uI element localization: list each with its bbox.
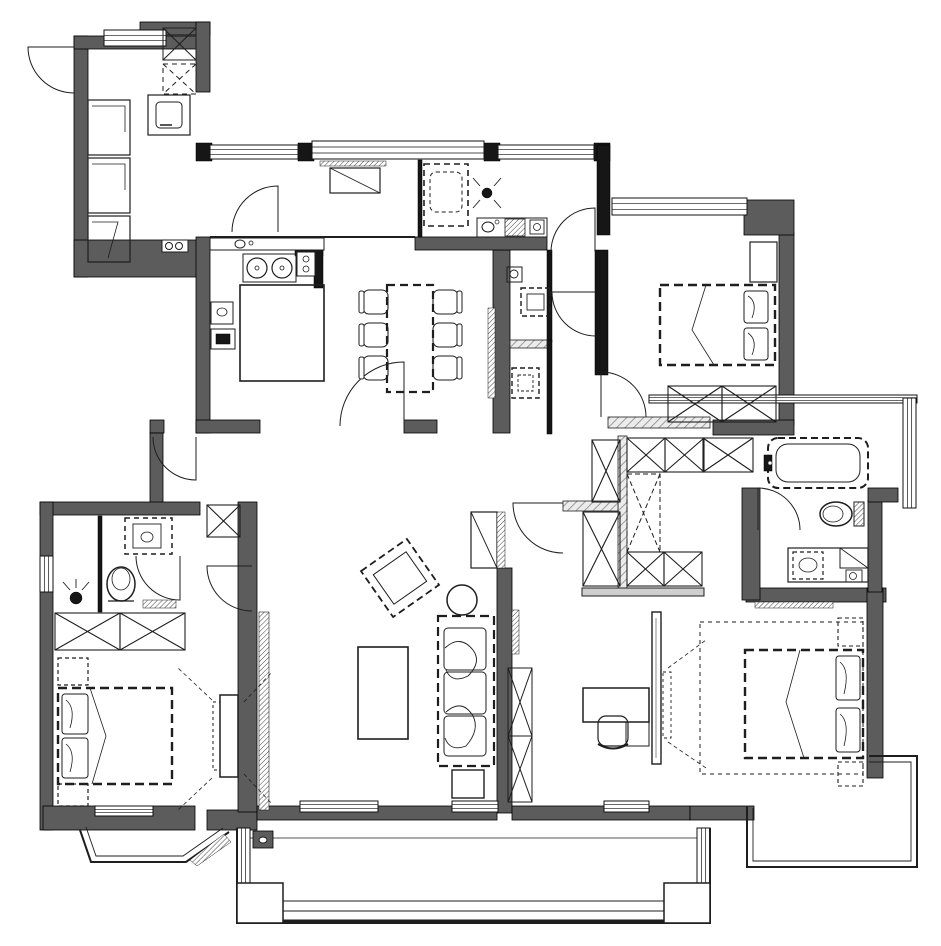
foyer: [88, 28, 196, 262]
walk-in-closet: [582, 438, 753, 596]
master-bedroom: [508, 602, 863, 802]
floor-plan-canvas: [0, 0, 941, 946]
living-room: [259, 512, 505, 810]
floor-plan: [0, 0, 941, 946]
doors: [28, 47, 800, 611]
bathroom-2: [764, 438, 868, 582]
balcony: [237, 828, 710, 923]
kitchen: [210, 237, 415, 381]
dining-area: [359, 285, 462, 392]
laundry-room: [320, 161, 547, 237]
windows: [40, 30, 917, 923]
partition-walls: [510, 340, 710, 588]
